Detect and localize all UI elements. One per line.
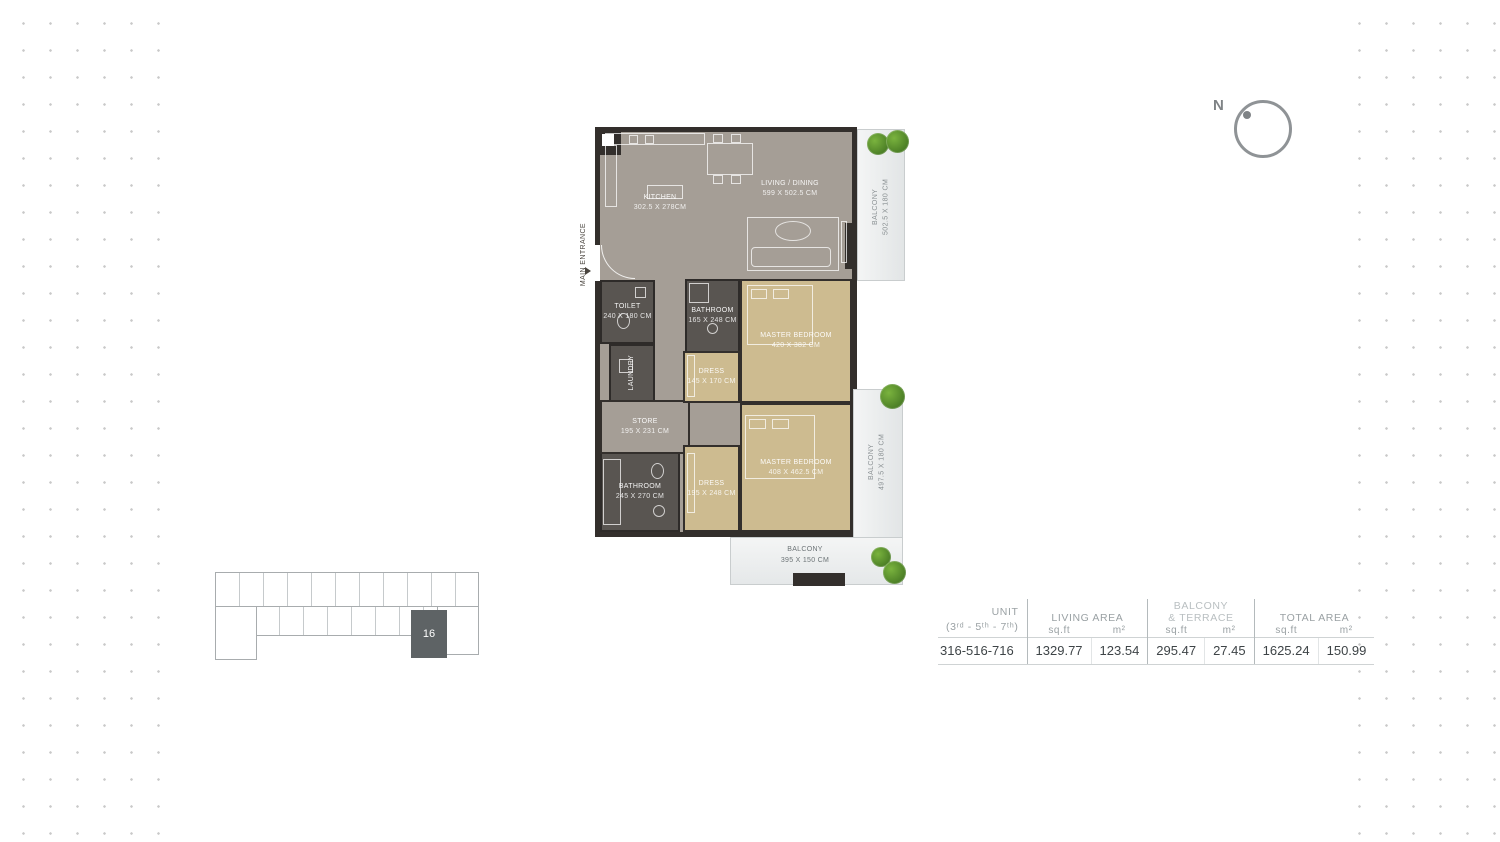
total-area-header: TOTAL AREA xyxy=(1254,599,1374,625)
toilet-fixture-outline xyxy=(651,463,664,479)
kitchen-island-outline xyxy=(647,185,683,199)
chair-outline xyxy=(731,175,741,184)
dotted-pattern-right xyxy=(1336,0,1500,842)
balcony-sqft-label: sq.ft xyxy=(1148,625,1205,638)
total-sqft-value: 1625.24 xyxy=(1254,638,1318,665)
page: { "compass": { "north_label": "N" }, "ke… xyxy=(0,0,1500,842)
unit-column-header: UNIT (3ʳᵈ - 5ᵗʰ - 7ᵗʰ) xyxy=(938,599,1027,638)
unit-header-label: UNIT xyxy=(992,606,1019,618)
entrance-door-opening xyxy=(595,245,600,281)
bathtub-outline xyxy=(603,459,621,525)
room-living-dining-label: LIVING / DINING 599 x 502.5 cm xyxy=(745,179,835,199)
living-sqft-label: sq.ft xyxy=(1027,625,1091,638)
chair-outline xyxy=(713,134,723,143)
balcony-top-label: BALCONY 502.5 x 180 cm xyxy=(871,162,892,252)
shower-outline xyxy=(689,283,709,303)
room-toilet: TOILET 240 x 180 cm xyxy=(600,280,655,344)
compass-dot-icon xyxy=(1243,111,1251,119)
kitchen-counter-outline xyxy=(605,145,617,207)
chair-outline xyxy=(713,175,723,184)
pillow-outline xyxy=(772,419,789,429)
chair-outline xyxy=(731,134,741,143)
compass-icon: N xyxy=(1234,100,1292,158)
plant-icon xyxy=(886,130,909,153)
room-store-label: STORE 195 x 231 cm xyxy=(621,417,669,437)
wardrobe-outline xyxy=(687,453,695,513)
wardrobe-outline xyxy=(687,355,695,397)
tv-unit-outline xyxy=(841,221,847,263)
floor-plan: KITCHEN 302.5 x 278cm LIVING / DINING 59… xyxy=(595,127,910,589)
room-bathroom-lower-label: BATHROOM 245 x 270 cm xyxy=(616,482,664,502)
room-laundry: LAUNDRY xyxy=(609,344,655,402)
wall-segment xyxy=(793,573,845,586)
balcony-bottom-label: BALCONY 395 x 150 cm xyxy=(765,545,845,566)
room-store: STORE 195 x 231 cm xyxy=(600,400,690,454)
sink-outline xyxy=(635,287,646,298)
dotted-pattern-left xyxy=(0,0,180,842)
toilet-fixture-outline xyxy=(617,313,630,329)
areas-table: UNIT (3ʳᵈ - 5ᵗʰ - 7ᵗʰ) LIVING AREA BALCO… xyxy=(938,599,1374,665)
sink-outline xyxy=(653,505,665,517)
living-m2-value: 123.54 xyxy=(1091,638,1148,665)
unit-subheader-label: (3ʳᵈ - 5ᵗʰ - 7ᵗʰ) xyxy=(946,621,1019,633)
plant-icon xyxy=(883,561,906,584)
keyplan-top-wing xyxy=(215,572,479,608)
kitchen-appliance-outline xyxy=(645,135,654,144)
total-m2-label: m² xyxy=(1318,625,1374,638)
washer-outline xyxy=(619,359,633,373)
kitchen-counter-outline xyxy=(605,133,705,145)
keyplan-highlighted-unit: 16 xyxy=(411,610,447,658)
balcony-right-label: BALCONY 497.5 x 180 cm xyxy=(867,412,888,512)
balcony-sqft-value: 295.47 xyxy=(1148,638,1205,665)
total-m2-value: 150.99 xyxy=(1318,638,1374,665)
sink-outline xyxy=(707,323,718,334)
keyplan-left-wing xyxy=(215,606,257,660)
pillow-outline xyxy=(749,419,766,429)
living-sqft-value: 1329.77 xyxy=(1027,638,1091,665)
living-m2-label: m² xyxy=(1091,625,1148,638)
dining-table-outline xyxy=(707,143,753,175)
kitchen-appliance-outline xyxy=(629,135,638,144)
unit-value: 316-516-716 xyxy=(938,638,1027,665)
balcony-m2-value: 27.45 xyxy=(1205,638,1255,665)
table-data-row: 316-516-716 1329.77 123.54 295.47 27.45 … xyxy=(938,638,1374,665)
keyplan-unit-number: 16 xyxy=(423,628,435,640)
entrance-arrow-icon xyxy=(585,267,591,275)
building-key-plan: 16 xyxy=(215,563,477,666)
balcony-m2-label: m² xyxy=(1205,625,1255,638)
total-sqft-label: sq.ft xyxy=(1254,625,1318,638)
plant-icon xyxy=(880,384,905,409)
table-group-header-row: UNIT (3ʳᵈ - 5ᵗʰ - 7ᵗʰ) LIVING AREA BALCO… xyxy=(938,599,1374,625)
main-entrance-label: MAIN ENTRANCE xyxy=(580,223,587,286)
sofa-outline xyxy=(751,247,831,267)
compass-north-label: N xyxy=(1213,97,1224,114)
pillow-outline xyxy=(751,289,767,299)
living-area-header: LIVING AREA xyxy=(1027,599,1148,625)
coffee-table-outline xyxy=(775,221,811,241)
pillow-outline xyxy=(773,289,789,299)
balcony-terrace-header: BALCONY & TERRACE xyxy=(1148,599,1254,625)
